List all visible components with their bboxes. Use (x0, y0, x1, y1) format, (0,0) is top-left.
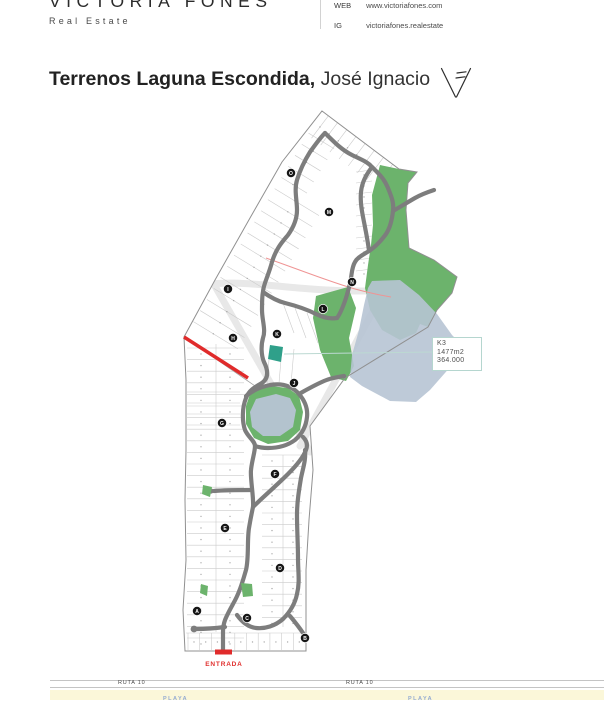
zone-marker-J[interactable]: J (289, 378, 298, 387)
beach-band (50, 690, 604, 700)
parcel-tooltip[interactable]: K3 1477m2 364.000 (432, 337, 482, 371)
contact-web-row: WEB www.victoriafones.com (334, 1, 442, 10)
zone-marker-B[interactable]: B (300, 633, 309, 642)
zone-marker-I[interactable]: I (223, 284, 232, 293)
svg-text:D: D (278, 566, 282, 572)
svg-text:O: O (289, 171, 293, 177)
contact-ig-value[interactable]: victoriafones.realestate (366, 21, 443, 30)
zone-marker-K[interactable]: K (272, 329, 281, 338)
contact-web-label: WEB (334, 1, 364, 10)
route-label-right: RUTA 10 (346, 680, 374, 686)
zone-marker-L[interactable]: L (318, 304, 327, 313)
svg-text:L: L (321, 307, 324, 313)
beach-label-right: PLAYA (408, 696, 433, 702)
culdesac-bulb (191, 626, 198, 633)
svg-text:B: B (303, 636, 307, 642)
page-title: Terrenos Laguna Escondida, José Ignacio (49, 68, 430, 91)
brand-logo-text: VICTORIA FONES (49, 0, 273, 11)
svg-text:F: F (273, 472, 276, 478)
subdivision-map[interactable]: OMNILKHJGFEDACB ENTRADA (0, 0, 604, 700)
zone-marker-D[interactable]: D (275, 563, 284, 572)
page-title-bold: Terrenos Laguna Escondida, (49, 68, 315, 90)
road-spur-west (214, 490, 251, 491)
svg-text:G: G (220, 421, 224, 427)
svg-text:J: J (293, 381, 296, 387)
beach-label-left: PLAYA (163, 696, 188, 702)
svg-text:A: A (195, 609, 199, 615)
zone-marker-F[interactable]: F (270, 469, 279, 478)
contact-ig-row: IG victoriafones.realestate (334, 21, 443, 30)
zone-marker-M[interactable]: M (324, 207, 333, 216)
zone-marker-O[interactable]: O (286, 168, 295, 177)
contact-ig-label: IG (334, 21, 364, 30)
zone-marker-C[interactable]: C (242, 613, 251, 622)
header-divider (320, 0, 321, 29)
page-title-light: José Ignacio (315, 68, 430, 90)
route-line-bottom (50, 687, 604, 688)
tooltip-parcel-id: K3 (437, 340, 481, 349)
svg-text:N: N (350, 280, 354, 286)
svg-text:M: M (327, 210, 331, 216)
v-logo-icon (438, 64, 474, 104)
zone-marker-H[interactable]: H (228, 333, 237, 342)
zone-marker-A[interactable]: A (192, 606, 201, 615)
zone-marker-N[interactable]: N (347, 277, 356, 286)
road-culdesac-west (197, 627, 225, 629)
brand-tagline: Real Estate (49, 16, 131, 26)
selected-parcel-k3[interactable] (268, 345, 283, 362)
svg-text:K: K (275, 332, 279, 338)
entrance-bar (215, 650, 232, 655)
contact-web-value[interactable]: www.victoriafones.com (366, 1, 442, 10)
tooltip-parcel-price: 364.000 (437, 357, 481, 366)
svg-text:C: C (245, 616, 249, 622)
zone-marker-E[interactable]: E (220, 523, 229, 532)
entrance-label: ENTRADA (205, 661, 242, 668)
svg-text:H: H (231, 336, 235, 342)
tooltip-parcel-area: 1477m2 (437, 349, 481, 358)
route-label-left: RUTA 10 (118, 680, 146, 686)
zone-marker-G[interactable]: G (217, 418, 226, 427)
